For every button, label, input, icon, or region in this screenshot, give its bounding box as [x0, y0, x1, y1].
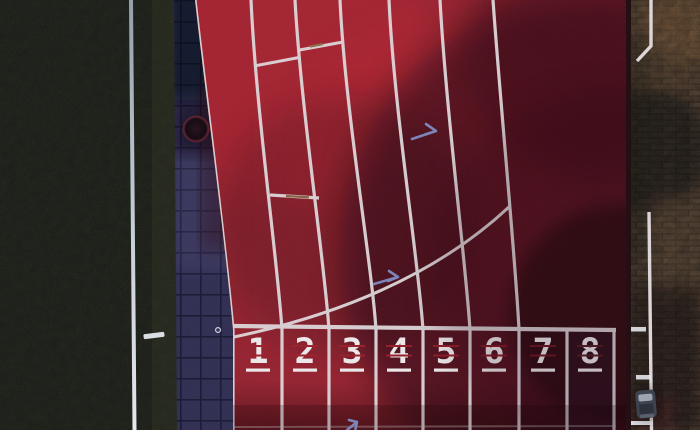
- lane-number-underline: [340, 369, 364, 372]
- car-roof: [639, 403, 654, 414]
- wall-dash-marking: [631, 327, 646, 332]
- lane-number-3: 3: [341, 332, 362, 372]
- lane-number-underline: [293, 369, 317, 372]
- lane-number-underline: [246, 369, 270, 372]
- lane-number-1: 1: [247, 332, 268, 372]
- worn-grass-strip: [152, 0, 177, 430]
- texture-overlay: [631, 0, 700, 430]
- stencil-gap: [339, 355, 365, 357]
- stencil-gap: [292, 345, 318, 347]
- wall-dash-marking: [636, 375, 651, 380]
- stencil-gap: [339, 345, 365, 347]
- lane-number-4: 4: [388, 332, 409, 372]
- worn-mark: [286, 196, 309, 197]
- texture-overlay: [0, 0, 177, 430]
- grass-field: [0, 0, 177, 430]
- shadow-overlay: [195, 405, 631, 430]
- stencil-gap: [245, 345, 271, 347]
- stencil-gap: [245, 355, 271, 357]
- lane-number-underline: [387, 369, 411, 372]
- aerial-track-photo: 12345678: [0, 0, 700, 430]
- lane-number-underline: [434, 369, 458, 372]
- manhole-cover: [184, 117, 209, 142]
- stencil-gap: [292, 355, 318, 357]
- stencil-gap: [386, 355, 412, 357]
- car-windshield: [638, 393, 653, 401]
- stencil-gap: [386, 345, 412, 347]
- lane-number-2: 2: [294, 332, 315, 372]
